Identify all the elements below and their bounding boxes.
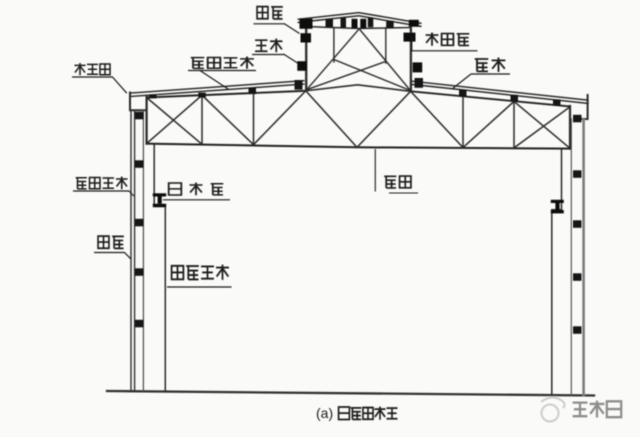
svg-text:(a): (a)	[316, 405, 333, 421]
